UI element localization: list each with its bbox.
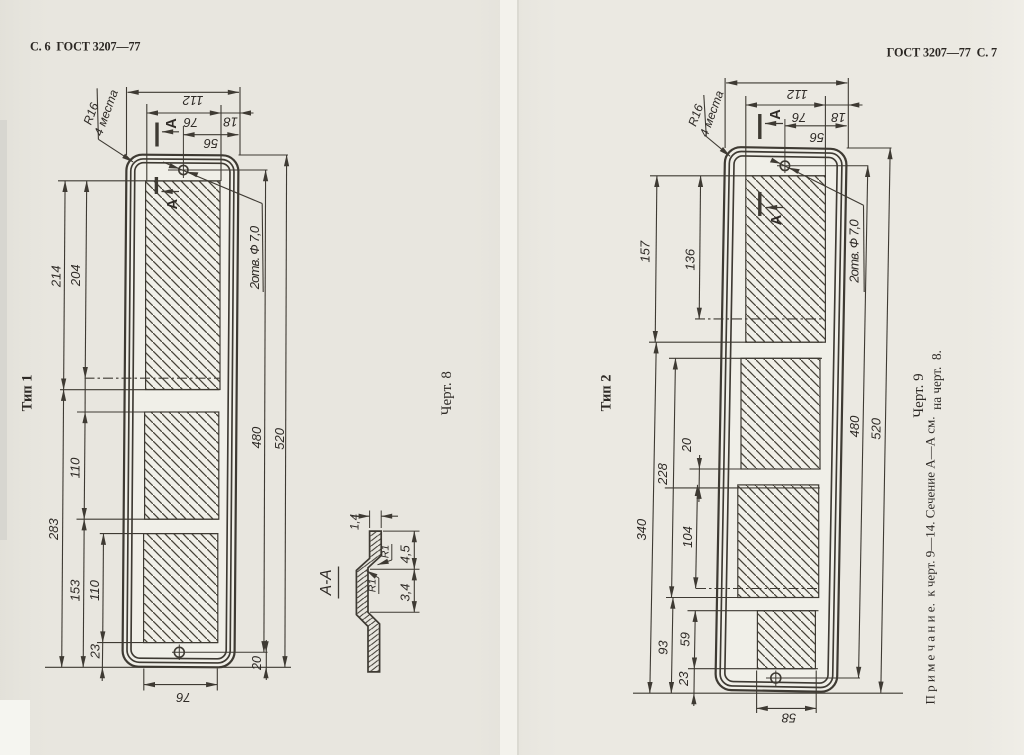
svg-text:204: 204 [68,264,83,287]
svg-text:2отв. Ф 7,0: 2отв. Ф 7,0 [846,219,861,284]
svg-text:А: А [165,199,181,210]
svg-text:112: 112 [786,87,807,102]
svg-text:Черт. 9: Черт. 9 [911,373,927,417]
svg-text:1,4: 1,4 [350,514,362,530]
svg-text:23: 23 [88,643,103,659]
svg-text:23: 23 [676,671,691,687]
svg-text:Черт. 8: Черт. 8 [439,371,455,415]
svg-text:А: А [768,109,784,120]
svg-text:157: 157 [637,240,652,262]
svg-text:С. 6 ГОСТ 3207—77: С. 6 ГОСТ 3207—77 [30,40,140,54]
svg-text:93: 93 [655,640,670,655]
svg-text:18: 18 [223,115,238,130]
svg-text:20: 20 [680,438,694,453]
svg-text:480: 480 [847,415,862,437]
svg-text:110: 110 [87,579,102,600]
svg-text:56: 56 [809,130,824,145]
svg-text:104: 104 [680,526,695,548]
svg-text:520: 520 [868,417,883,439]
svg-text:520: 520 [272,427,287,449]
svg-text:Тип 1: Тип 1 [20,374,36,411]
svg-text:59: 59 [678,632,693,646]
svg-text:R1: R1 [367,579,379,592]
svg-text:58: 58 [781,710,796,725]
svg-text:153: 153 [68,579,83,601]
svg-text:18: 18 [831,110,846,125]
svg-text:R1: R1 [380,545,392,558]
svg-text:112: 112 [182,93,203,108]
svg-text:А: А [164,118,180,129]
svg-text:76: 76 [176,690,191,705]
svg-text:4,5: 4,5 [398,544,413,563]
svg-text:214: 214 [49,265,64,288]
svg-text:283: 283 [46,518,61,541]
svg-text:76: 76 [183,115,198,130]
svg-text:А-А: А-А [318,569,335,596]
svg-text:480: 480 [249,426,264,448]
svg-text:П р и м е ч а н и е. к черт.: П р и м е ч а н и е. к черт. 9—14. Сечен… [922,416,937,704]
svg-text:76: 76 [791,110,806,125]
svg-text:340: 340 [634,518,649,540]
svg-text:А: А [769,214,785,225]
svg-text:20: 20 [250,656,264,671]
svg-text:2отв. Ф 7,0: 2отв. Ф 7,0 [247,225,262,290]
svg-text:ГОСТ 3207—77 С. 7: ГОСТ 3207—77 С. 7 [887,46,997,60]
svg-text:56: 56 [203,136,218,151]
svg-text:228: 228 [655,462,670,485]
svg-text:Тип 2: Тип 2 [599,374,615,411]
svg-text:110: 110 [68,457,83,478]
svg-text:136: 136 [682,248,697,270]
svg-text:на черт. 8.: на черт. 8. [929,350,944,410]
svg-text:3,4: 3,4 [398,583,413,601]
